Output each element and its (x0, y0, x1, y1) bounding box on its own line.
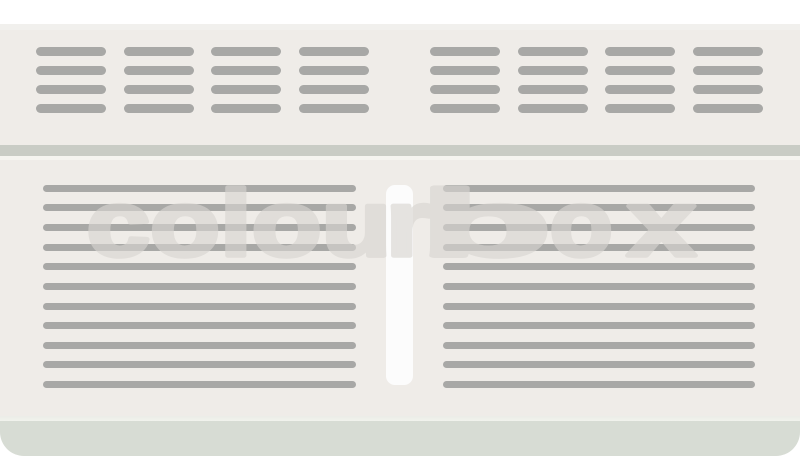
svg-text:o: o (550, 171, 613, 276)
svg-text:b: b (420, 171, 551, 276)
svg-text:x: x (627, 172, 696, 276)
svg-text:colou: colou (87, 171, 392, 276)
